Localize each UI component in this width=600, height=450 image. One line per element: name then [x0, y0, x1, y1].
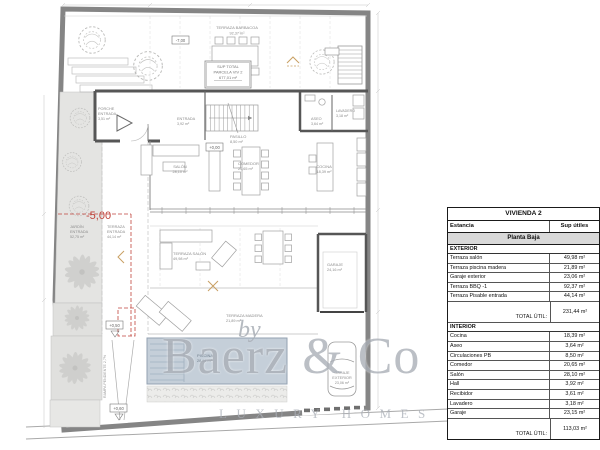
floor-header: Planta Baja	[448, 233, 599, 245]
table-row: Lavadero 3,18 m²	[448, 400, 599, 410]
label-jardin-area: 52,75 m²	[70, 235, 85, 239]
total-value: 231,44 m²	[551, 302, 599, 322]
table-row: Salón 28,10 m²	[448, 371, 599, 381]
label-piscina: PISCINA	[197, 353, 213, 358]
level-minus7: -7,00	[176, 38, 186, 43]
label-terraza-barbacoa: TERRAZA BARBACOA	[216, 25, 258, 30]
row-label: Terraza piscina madera	[448, 264, 550, 273]
col-header-sup-utiles: Sup útiles	[550, 221, 599, 232]
row-label: Hall	[448, 380, 550, 389]
total-value: 113,03 m²	[551, 419, 599, 439]
section-header-exterior: EXTERIOR	[448, 245, 599, 255]
table-row: Hall 3,92 m²	[448, 380, 599, 390]
row-label: Comedor	[448, 361, 550, 370]
row-value: 20,65 m²	[550, 361, 599, 370]
label-jardin-1: JARDÍN	[70, 225, 84, 229]
total-label: TOTAL ÚTIL:	[448, 302, 551, 322]
table-row: Terraza Pisable entrada 44,14 m²	[448, 292, 599, 302]
parcel-label-1: SUP TOTAL	[217, 64, 239, 69]
table-row: Circulaciones PB 8,50 m²	[448, 352, 599, 362]
interior-stairs	[206, 103, 258, 133]
label-aseo: ASEO	[311, 117, 322, 121]
table-row: Terraza salón 49,98 m²	[448, 254, 599, 264]
parcel-label-2: PARCELA VIV 2	[213, 70, 243, 75]
label-garaje-ext-2: EXTERIOR	[332, 376, 352, 380]
label-terraza-madera: TERRAZA MADERA	[226, 313, 263, 318]
row-value: 28,10 m²	[550, 371, 599, 380]
table-row: Aseo 3,64 m²	[448, 342, 599, 352]
row-value: 23,06 m²	[550, 273, 599, 282]
row-label: Salón	[448, 371, 550, 380]
table-row: Garaje 23,15 m²	[448, 409, 599, 419]
label-porche-area: 3,51 m²	[98, 117, 111, 121]
label-garaje: GARAJE	[327, 262, 343, 267]
total-label: TOTAL ÚTIL:	[448, 419, 551, 439]
label-comedor: COMEDOR	[238, 161, 259, 166]
row-value: 49,98 m²	[550, 254, 599, 263]
row-value: 18,39 m²	[550, 332, 599, 341]
label-porche-1: PORCHE	[98, 107, 115, 111]
label-salon-area: 28,10 m²	[173, 170, 189, 174]
level-minus5: -5,00	[86, 210, 111, 222]
level-plus050: +0,50	[109, 323, 120, 328]
label-piscina-area: 28,04 m²	[197, 359, 213, 363]
label-aseo-area: 3,64 m²	[311, 122, 324, 126]
label-garaje-ext-area: 23,06 m²	[335, 381, 350, 385]
row-label: Terraza salón	[448, 254, 550, 263]
row-label: Circulaciones PB	[448, 352, 550, 361]
row-value: 21,89 m²	[550, 264, 599, 273]
parcel-label-3: 677,01 m²	[219, 75, 238, 80]
row-value: 3,64 m²	[550, 342, 599, 351]
row-label: Garaje	[448, 409, 550, 418]
label-lavadero: LAVADERO	[336, 109, 355, 113]
col-header-estancia: Estancia	[448, 221, 550, 232]
label-terraza-barbacoa-area: 92,37 m²	[230, 32, 246, 36]
label-jardin-2: ENTRADA	[70, 230, 89, 234]
row-label: Garaje exterior	[448, 273, 550, 282]
exterior-total-row: TOTAL ÚTIL: 231,44 m²	[448, 302, 599, 323]
table-column-headers: Estancia Sup útiles	[448, 221, 599, 233]
table-title: VIVIENDA 2	[448, 208, 599, 221]
label-entrada-area: 3,92 m²	[177, 122, 190, 126]
section-header-interior: INTERIOR	[448, 323, 599, 333]
row-value: 3,18 m²	[550, 400, 599, 409]
label-terraza-salon-area: 49,98 m²	[173, 257, 189, 261]
label-pasillo-area: 8,50 m²	[230, 140, 244, 144]
ramp-note: RAMPA PENDIENTE 2,7%	[103, 354, 107, 398]
label-comedor-area: 20,65 m²	[238, 167, 254, 171]
row-label: Aseo	[448, 342, 550, 351]
row-label: Lavadero	[448, 400, 550, 409]
label-pasillo: PASILLO	[230, 134, 246, 139]
table-row: Terraza BBQ -1 92,37 m²	[448, 283, 599, 293]
row-value: 3,61 m²	[550, 390, 599, 399]
row-value: 3,92 m²	[550, 380, 599, 389]
table-row: Comedor 20,65 m²	[448, 361, 599, 371]
row-value: 44,14 m²	[550, 292, 599, 301]
label-terraza-entrada-area: 44,14 m²	[107, 235, 122, 239]
row-label: Terraza BBQ -1	[448, 283, 550, 292]
level-zero: +0,00	[209, 145, 220, 150]
row-value: 23,15 m²	[550, 409, 599, 418]
label-terraza-entrada-2: ENTRADA	[107, 230, 126, 234]
planting-strip	[147, 386, 287, 402]
area-table: VIVIENDA 2 Estancia Sup útiles Planta Ba…	[447, 207, 600, 440]
table-row: Garaje exterior 23,06 m²	[448, 273, 599, 283]
row-label: Recibidor	[448, 390, 550, 399]
table-row: Cocina 18,39 m²	[448, 332, 599, 342]
interior-total-row: TOTAL ÚTIL: 113,03 m²	[448, 419, 599, 439]
label-cocina: COCINA	[316, 164, 332, 169]
row-value: 8,50 m²	[550, 352, 599, 361]
page: -7,00 +0,00 +0,50 +0,60 -5,00 SUP TOTAL …	[0, 0, 600, 450]
label-terraza-salon: TERRAZA SALÓN	[173, 251, 206, 256]
label-garaje-ext-1: GARAJE	[334, 371, 350, 375]
label-garaje-area: 24,16 m²	[327, 268, 343, 272]
row-value: 92,37 m²	[550, 283, 599, 292]
label-porche-2: ENTRADA	[98, 112, 117, 116]
label-entrada: ENTRADA	[177, 117, 196, 121]
label-terraza-entrada-1: TERRAZA	[107, 225, 125, 229]
row-label: Cocina	[448, 332, 550, 341]
label-cocina-area: 18,39 m²	[317, 170, 333, 174]
level-plus060: +0,60	[113, 406, 124, 411]
pool	[147, 338, 287, 384]
label-lavadero-area: 3,18 m²	[336, 114, 349, 118]
label-salon: SALÓN	[173, 164, 187, 169]
label-terraza-madera-area: 21,89 m²	[226, 319, 242, 323]
row-label: Terraza Pisable entrada	[448, 292, 550, 301]
table-row: Terraza piscina madera 21,89 m²	[448, 264, 599, 274]
table-row: Recibidor 3,61 m²	[448, 390, 599, 400]
